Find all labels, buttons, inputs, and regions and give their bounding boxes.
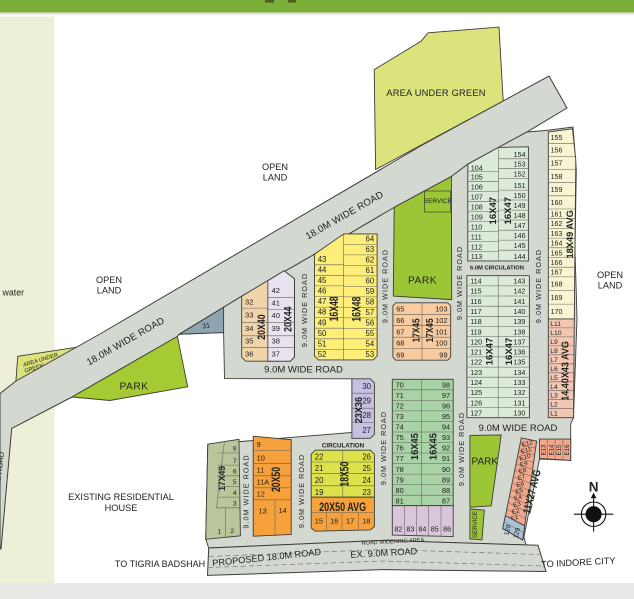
svg-text:LAND: LAND xyxy=(97,286,122,296)
svg-text:1: 1 xyxy=(217,529,221,536)
svg-text:147: 147 xyxy=(514,221,526,230)
svg-text:63: 63 xyxy=(366,245,375,254)
svg-text:108: 108 xyxy=(471,203,483,212)
svg-text:36: 36 xyxy=(245,350,253,359)
svg-text:23: 23 xyxy=(362,488,371,497)
svg-text:16X47: 16X47 xyxy=(484,338,495,366)
svg-text:98: 98 xyxy=(442,381,450,390)
svg-text:L4: L4 xyxy=(550,384,558,391)
svg-text:PARK: PARK xyxy=(120,382,149,393)
svg-text:16X47: 16X47 xyxy=(488,197,499,225)
svg-text:19: 19 xyxy=(315,488,324,497)
svg-text:17: 17 xyxy=(346,517,354,526)
svg-text:PARK: PARK xyxy=(408,276,437,287)
svg-text:164: 164 xyxy=(551,240,563,248)
svg-text:50: 50 xyxy=(318,329,327,338)
svg-text:16: 16 xyxy=(330,517,338,526)
svg-text:OPEN: OPEN xyxy=(96,275,122,285)
svg-text:20X40: 20X40 xyxy=(256,314,268,339)
svg-text:75: 75 xyxy=(396,433,404,442)
svg-text:169: 169 xyxy=(551,294,563,302)
svg-text:48: 48 xyxy=(318,308,327,317)
svg-text:TO TIGRIA BADSHAH: TO TIGRIA BADSHAH xyxy=(115,559,205,569)
svg-text:66: 66 xyxy=(396,316,404,325)
svg-text:130: 130 xyxy=(513,409,525,418)
svg-text:68: 68 xyxy=(396,339,404,348)
svg-text:L2: L2 xyxy=(550,402,558,409)
svg-text:152: 152 xyxy=(514,170,526,179)
svg-text:9.0M WIDE ROAD: 9.0M WIDE ROAD xyxy=(379,411,388,485)
svg-text:124: 124 xyxy=(470,378,482,387)
svg-text:99: 99 xyxy=(439,350,447,359)
svg-text:37: 37 xyxy=(272,350,280,359)
svg-text:EXISTING RESIDENTIAL: EXISTING RESIDENTIAL xyxy=(68,492,174,502)
svg-text:160: 160 xyxy=(551,199,563,207)
svg-text:132: 132 xyxy=(513,388,525,397)
svg-text:109: 109 xyxy=(471,213,483,222)
svg-text:23X36: 23X36 xyxy=(353,397,365,423)
svg-text:58: 58 xyxy=(366,298,375,307)
svg-text:PARK: PARK xyxy=(472,457,499,468)
svg-text:100: 100 xyxy=(435,339,447,348)
svg-text:33: 33 xyxy=(245,311,253,320)
svg-text:151: 151 xyxy=(514,181,526,190)
svg-text:34: 34 xyxy=(245,324,253,333)
svg-text:170: 170 xyxy=(551,308,563,316)
svg-text:95: 95 xyxy=(442,412,450,421)
svg-text:142: 142 xyxy=(513,287,525,296)
svg-text:E13: E13 xyxy=(541,444,548,456)
svg-text:150: 150 xyxy=(514,191,526,200)
svg-text:2: 2 xyxy=(230,528,234,535)
svg-text:125: 125 xyxy=(470,388,482,397)
svg-text:L8: L8 xyxy=(550,348,558,355)
svg-text:L10: L10 xyxy=(550,330,562,337)
svg-text:140: 140 xyxy=(513,307,525,316)
svg-text:60: 60 xyxy=(366,277,375,286)
svg-text:5: 5 xyxy=(233,479,237,486)
svg-text:73: 73 xyxy=(396,412,404,421)
svg-text:135: 135 xyxy=(513,358,525,367)
svg-text:62: 62 xyxy=(366,256,375,265)
svg-text:168: 168 xyxy=(551,280,563,288)
svg-text:SERVICE: SERVICE xyxy=(424,198,452,205)
svg-text:54: 54 xyxy=(366,340,375,349)
svg-text:25: 25 xyxy=(362,464,371,473)
svg-text:52: 52 xyxy=(318,350,327,359)
svg-text:89: 89 xyxy=(442,475,450,484)
svg-text:83: 83 xyxy=(406,524,414,533)
svg-text:145: 145 xyxy=(514,241,526,250)
svg-text:30: 30 xyxy=(362,382,371,391)
svg-text:136: 136 xyxy=(513,348,525,357)
svg-text:67: 67 xyxy=(396,327,404,336)
svg-text:120: 120 xyxy=(470,338,482,347)
svg-text:102: 102 xyxy=(435,316,447,325)
svg-text:4: 4 xyxy=(233,490,237,497)
svg-text:21: 21 xyxy=(315,464,324,473)
svg-text:17X45: 17X45 xyxy=(411,318,423,342)
svg-text:27: 27 xyxy=(362,426,371,435)
svg-text:9.0M WIDE ROAD: 9.0M WIDE ROAD xyxy=(479,423,558,434)
svg-text:84: 84 xyxy=(418,524,426,533)
svg-text:101: 101 xyxy=(435,327,447,336)
svg-text:158: 158 xyxy=(551,173,563,181)
svg-text:14.40X43 AVG: 14.40X43 AVG xyxy=(561,341,572,401)
svg-text:20: 20 xyxy=(315,476,324,485)
svg-text:74: 74 xyxy=(396,423,404,432)
svg-text:133: 133 xyxy=(513,378,525,387)
svg-text:81: 81 xyxy=(396,496,404,505)
svg-text:138: 138 xyxy=(513,327,525,336)
svg-text:126: 126 xyxy=(470,398,482,407)
svg-text:72: 72 xyxy=(396,402,404,411)
svg-text:87: 87 xyxy=(442,496,450,505)
svg-text:64: 64 xyxy=(366,235,375,244)
svg-text:137: 137 xyxy=(513,338,525,347)
svg-text:117: 117 xyxy=(470,307,481,316)
svg-text:146: 146 xyxy=(514,231,526,240)
svg-text:42: 42 xyxy=(272,286,280,295)
svg-text:22: 22 xyxy=(315,453,324,462)
svg-text:9.0M WIDE ROAD: 9.0M WIDE ROAD xyxy=(381,249,390,323)
svg-text:9.0M WIDE ROAD: 9.0M WIDE ROAD xyxy=(457,412,466,486)
svg-text:112: 112 xyxy=(471,243,482,252)
svg-text:18: 18 xyxy=(362,517,370,526)
svg-text:127: 127 xyxy=(470,409,482,418)
svg-text:26: 26 xyxy=(362,453,371,462)
svg-text:CIRCULATION: CIRCULATION xyxy=(322,442,365,449)
svg-text:80: 80 xyxy=(396,486,404,495)
svg-text:44: 44 xyxy=(318,266,327,275)
svg-text:53: 53 xyxy=(366,350,375,359)
svg-text:41: 41 xyxy=(272,299,280,308)
svg-text:105: 105 xyxy=(471,172,483,181)
svg-text:16X48: 16X48 xyxy=(327,296,341,321)
svg-text:131: 131 xyxy=(513,398,525,407)
svg-text:90: 90 xyxy=(442,465,450,474)
svg-text:16X48: 16X48 xyxy=(349,296,363,321)
svg-text:31: 31 xyxy=(202,322,211,330)
svg-text:20X50 AVG: 20X50 AVG xyxy=(319,500,366,514)
svg-text:E14: E14 xyxy=(548,444,555,456)
svg-text:119: 119 xyxy=(470,327,481,336)
svg-text:18X49 AVG: 18X49 AVG xyxy=(565,210,576,258)
svg-text:123: 123 xyxy=(470,368,482,377)
svg-text:88: 88 xyxy=(442,486,450,495)
svg-text:156: 156 xyxy=(551,147,563,155)
svg-text:18X50: 18X50 xyxy=(337,461,351,486)
svg-text:104: 104 xyxy=(471,163,483,172)
svg-text:15: 15 xyxy=(315,517,323,526)
svg-text:20X44: 20X44 xyxy=(282,306,294,332)
svg-text:9: 9 xyxy=(257,440,261,449)
svg-text:91: 91 xyxy=(442,454,450,463)
svg-text:121: 121 xyxy=(470,348,482,357)
svg-text:134: 134 xyxy=(513,368,525,377)
svg-text:9.0M WIDE ROAD: 9.0M WIDE ROAD xyxy=(242,454,251,528)
svg-text:70: 70 xyxy=(396,381,404,390)
svg-text:76: 76 xyxy=(396,444,404,453)
svg-text:E15: E15 xyxy=(556,444,563,456)
svg-text:154: 154 xyxy=(514,150,526,159)
svg-text:24: 24 xyxy=(362,476,371,485)
svg-text:59: 59 xyxy=(366,287,375,296)
svg-text:13: 13 xyxy=(259,507,267,516)
svg-text:11A: 11A xyxy=(257,478,270,487)
svg-text:14: 14 xyxy=(279,506,287,515)
svg-text:45: 45 xyxy=(318,276,327,285)
svg-text:N: N xyxy=(589,480,599,495)
svg-text:114: 114 xyxy=(470,277,481,286)
svg-text:9.0M WIDE ROAD: 9.0M WIDE ROAD xyxy=(300,273,309,347)
svg-text:55: 55 xyxy=(366,329,375,338)
svg-text:61: 61 xyxy=(366,266,375,275)
svg-text:71: 71 xyxy=(396,391,404,400)
svg-text:SERVICE: SERVICE xyxy=(472,511,479,538)
svg-text:167: 167 xyxy=(551,269,563,277)
svg-text:148: 148 xyxy=(514,211,526,220)
svg-text:46: 46 xyxy=(318,287,327,296)
svg-text:107: 107 xyxy=(471,192,483,201)
svg-text:L9: L9 xyxy=(550,339,558,346)
svg-text:L1: L1 xyxy=(550,411,558,418)
svg-text:9.0M WIDE ROAD: 9.0M WIDE ROAD xyxy=(534,249,543,323)
svg-text:93: 93 xyxy=(442,433,450,442)
svg-text:159: 159 xyxy=(551,186,563,194)
svg-text:6: 6 xyxy=(233,469,237,476)
svg-text:56: 56 xyxy=(366,319,375,328)
svg-text:AREA UNDER GREEN: AREA UNDER GREEN xyxy=(386,88,485,98)
svg-text:77: 77 xyxy=(396,454,404,463)
svg-text:149: 149 xyxy=(514,201,526,210)
svg-text:113: 113 xyxy=(471,252,482,261)
svg-text:17X49: 17X49 xyxy=(217,466,227,491)
svg-text:115: 115 xyxy=(470,287,481,296)
svg-text:E16: E16 xyxy=(564,444,571,456)
svg-text:HOUSE: HOUSE xyxy=(105,503,138,513)
svg-text:OPEN: OPEN xyxy=(262,162,288,172)
svg-text:144: 144 xyxy=(514,252,526,261)
svg-text:7: 7 xyxy=(233,458,237,465)
svg-text:165: 165 xyxy=(551,249,563,257)
svg-text:82: 82 xyxy=(394,524,402,533)
svg-text:L6: L6 xyxy=(550,366,558,373)
svg-text:155: 155 xyxy=(551,134,563,142)
svg-text:122: 122 xyxy=(470,358,482,367)
svg-text:6.0M CIRCULATION: 6.0M CIRCULATION xyxy=(470,265,524,271)
svg-text:9.0M WIDE ROAD: 9.0M WIDE ROAD xyxy=(264,365,343,376)
svg-text:85: 85 xyxy=(431,524,439,533)
svg-text:OPEN: OPEN xyxy=(597,270,623,280)
svg-text:43: 43 xyxy=(318,255,327,264)
svg-text:161: 161 xyxy=(551,211,563,219)
svg-text:97: 97 xyxy=(442,391,450,400)
svg-text:LAND: LAND xyxy=(598,281,623,291)
svg-text:49: 49 xyxy=(318,318,327,327)
svg-text:106: 106 xyxy=(471,183,483,192)
svg-text:32: 32 xyxy=(245,298,253,307)
svg-text:96: 96 xyxy=(442,402,450,411)
svg-text:110: 110 xyxy=(471,223,482,232)
svg-text:10: 10 xyxy=(257,453,265,462)
svg-text:57: 57 xyxy=(366,308,375,317)
svg-text:47: 47 xyxy=(318,297,327,306)
svg-text:111: 111 xyxy=(471,233,482,242)
svg-text:157: 157 xyxy=(551,160,563,168)
svg-text:39: 39 xyxy=(272,324,280,333)
svg-text:103: 103 xyxy=(435,305,447,314)
svg-text:40: 40 xyxy=(272,311,280,320)
svg-text:3: 3 xyxy=(233,501,237,508)
svg-text:163: 163 xyxy=(551,230,563,238)
svg-text:L3: L3 xyxy=(550,393,558,400)
svg-text:116: 116 xyxy=(470,297,481,306)
svg-text:16X45: 16X45 xyxy=(410,433,421,460)
svg-text:166: 166 xyxy=(551,259,563,267)
svg-text:94: 94 xyxy=(442,423,450,432)
svg-text:51: 51 xyxy=(318,340,327,349)
svg-text:141: 141 xyxy=(513,297,525,306)
svg-text:17X45: 17X45 xyxy=(424,318,436,342)
svg-text:11: 11 xyxy=(257,466,265,475)
svg-text:139: 139 xyxy=(513,317,525,326)
svg-text:92: 92 xyxy=(442,444,450,453)
svg-text:8: 8 xyxy=(233,446,237,453)
svg-text:9.0M WIDE ROAD: 9.0M WIDE ROAD xyxy=(455,246,464,320)
svg-text:78: 78 xyxy=(396,465,404,474)
svg-text:118: 118 xyxy=(470,317,481,326)
svg-text:20X50: 20X50 xyxy=(269,467,283,492)
svg-text:16X47: 16X47 xyxy=(503,197,514,225)
svg-text:9.0M WIDE ROAD: 9.0M WIDE ROAD xyxy=(297,454,306,528)
svg-text:143: 143 xyxy=(513,277,525,286)
svg-text:16X47: 16X47 xyxy=(504,338,515,366)
svg-text:86: 86 xyxy=(443,524,451,533)
svg-text:153: 153 xyxy=(514,160,526,169)
svg-text:12: 12 xyxy=(257,490,265,499)
svg-text:38: 38 xyxy=(272,337,280,346)
svg-text:water: water xyxy=(2,288,25,298)
svg-text:L5: L5 xyxy=(550,375,558,382)
svg-text:16X45: 16X45 xyxy=(428,433,439,460)
svg-text:162: 162 xyxy=(551,220,563,228)
svg-text:35: 35 xyxy=(245,337,253,346)
svg-text:79: 79 xyxy=(396,475,404,484)
svg-text:65: 65 xyxy=(396,305,404,314)
svg-text:L11: L11 xyxy=(550,321,561,328)
svg-text:L7: L7 xyxy=(550,357,558,364)
svg-text:69: 69 xyxy=(396,350,404,359)
svg-text:LAND: LAND xyxy=(263,173,288,183)
